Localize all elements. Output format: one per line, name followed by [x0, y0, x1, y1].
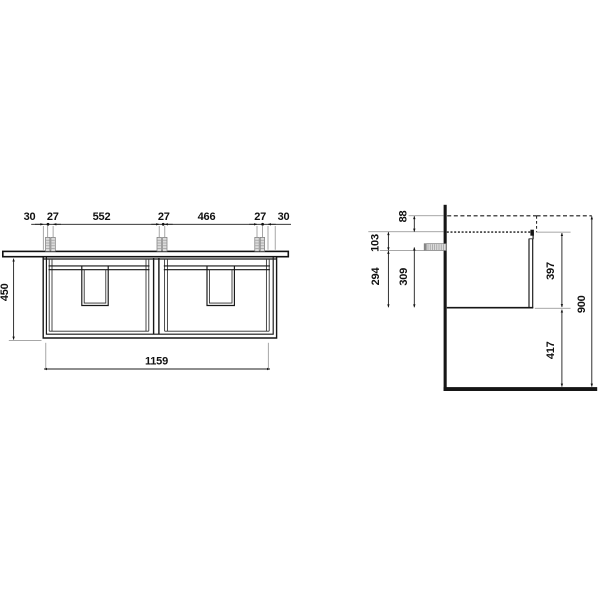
- dim-397: 397: [545, 233, 562, 307]
- dim-label-417: 417: [545, 341, 557, 359]
- dim-label-450: 450: [0, 283, 11, 301]
- dim-label-30-right: 30: [278, 211, 290, 223]
- bolt: [51, 237, 55, 251]
- dim-label-27-mid: 27: [158, 211, 170, 223]
- dim-label-294: 294: [370, 267, 382, 286]
- dim-width-1159: 1159: [44, 343, 270, 369]
- vanity-dimension-drawing: 30 27 552 27 466 27 30 450 1159: [0, 0, 600, 600]
- wall-line: [444, 205, 447, 391]
- dim-900: 900: [576, 216, 592, 386]
- bolt: [260, 237, 264, 251]
- dim-88: 88: [398, 211, 415, 232]
- drawer-left: [49, 260, 150, 332]
- dim-309: 309: [398, 247, 415, 307]
- dim-label-1159: 1159: [145, 356, 168, 368]
- drawer-right: [164, 260, 270, 332]
- bolt: [46, 237, 50, 251]
- bolt: [157, 237, 161, 251]
- bolt: [255, 237, 259, 251]
- dim-103: 103: [369, 232, 388, 252]
- bolt: [163, 237, 167, 251]
- washbasin-countertop: [3, 251, 289, 256]
- dim-label-309: 309: [398, 268, 410, 286]
- dim-height-450: 450: [0, 259, 42, 341]
- cabinet-body-side: [447, 230, 534, 308]
- dim-label-88: 88: [398, 211, 410, 223]
- fixing-bolts-front: [46, 237, 265, 251]
- floor-line: [444, 387, 598, 391]
- dim-label-27-left: 27: [47, 211, 59, 223]
- washbasin-dashed-outline: [447, 216, 592, 232]
- dim-label-900: 900: [576, 295, 588, 313]
- technical-drawing-page: 30 27 552 27 466 27 30 450 1159: [0, 0, 600, 600]
- dim-294: 294: [370, 251, 388, 307]
- dim-label-466: 466: [198, 211, 216, 223]
- dim-417: 417: [545, 310, 562, 387]
- side-extension-lines: [368, 216, 570, 309]
- siphon-cutout-right: [207, 266, 234, 306]
- siphon-cutout-left: [82, 266, 108, 306]
- dim-label-27-right: 27: [254, 211, 266, 223]
- dim-label-397: 397: [545, 262, 557, 280]
- side-view: 88 103 294 309 397 417 900: [368, 205, 597, 391]
- dim-label-552: 552: [93, 211, 111, 223]
- mounting-bolt-side: [424, 244, 446, 251]
- dim-label-103: 103: [369, 234, 381, 252]
- dim-label-30-left: 30: [24, 211, 36, 223]
- front-view: 30 27 552 27 466 27 30 450 1159: [0, 211, 291, 369]
